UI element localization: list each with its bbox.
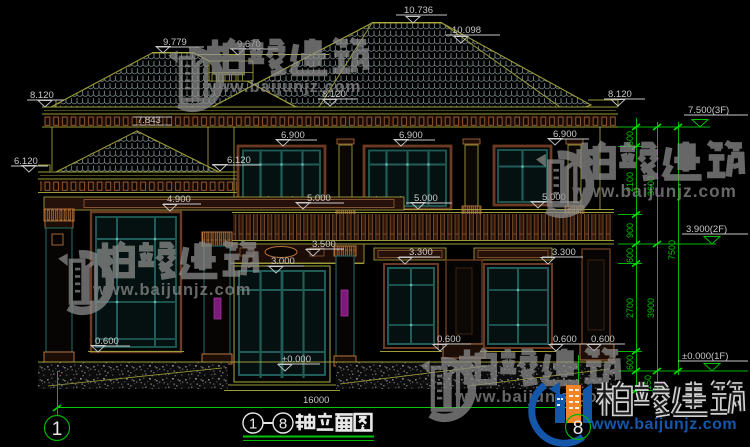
svg-text:6.120: 6.120 [227,155,251,166]
svg-text:3900: 3900 [646,298,656,318]
svg-text:3.300: 3.300 [409,247,433,258]
svg-text:0.600: 0.600 [437,334,461,345]
svg-text:8.120: 8.120 [608,89,632,100]
svg-text:8.120: 8.120 [30,90,54,101]
svg-text:10.736: 10.736 [404,5,433,16]
svg-text:600: 600 [625,248,635,263]
svg-text:www.baijunjz.com: www.baijunjz.com [590,416,737,433]
svg-text:0.600: 0.600 [591,334,615,345]
svg-text:3.500: 3.500 [312,239,336,250]
svg-text:16000: 16000 [303,395,329,406]
svg-text:10.098: 10.098 [452,25,481,36]
svg-text:±0.000(1F): ±0.000(1F) [682,351,728,362]
svg-text:4.900: 4.900 [167,194,191,205]
svg-text:8: 8 [279,416,287,433]
svg-text:600: 600 [625,355,635,370]
svg-text:3.900(2F): 3.900(2F) [686,224,727,235]
svg-text:900: 900 [625,223,635,238]
svg-text:0.600: 0.600 [553,334,577,345]
svg-text:1: 1 [52,419,63,440]
svg-text:8: 8 [573,418,584,439]
svg-text:7.500(3F): 7.500(3F) [688,105,729,116]
svg-text:3.300: 3.300 [552,247,576,258]
svg-text:7500: 7500 [667,240,677,260]
svg-text:1: 1 [249,416,257,433]
svg-text:±0.000: ±0.000 [282,354,311,365]
svg-text:3.000: 3.000 [271,256,295,267]
svg-text:2700: 2700 [625,298,635,318]
